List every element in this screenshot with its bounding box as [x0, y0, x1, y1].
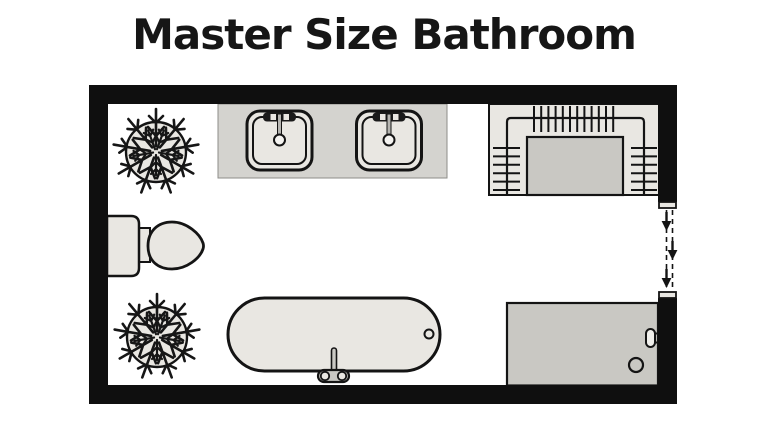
door-opening — [659, 202, 677, 298]
entry-arrow-icon — [668, 241, 678, 260]
sink-left-icon — [247, 111, 312, 170]
shower-icon — [507, 303, 660, 386]
page: Master Size Bathroom — [0, 0, 768, 432]
entry-arrow-icon — [662, 212, 672, 231]
door-jamb-bottom — [659, 292, 676, 298]
floor-plan — [0, 0, 768, 432]
plant-top-left-icon — [112, 109, 199, 195]
bathtub-icon — [228, 298, 440, 382]
closet-island — [527, 137, 623, 195]
toilet-icon — [107, 216, 204, 276]
bathtub-drain — [425, 330, 434, 339]
plant-bottom-left-icon — [113, 294, 200, 380]
entry-arrow-icon — [662, 269, 672, 288]
door-jamb-top — [659, 202, 676, 208]
sink-right-icon — [357, 111, 422, 170]
closet-racks — [489, 104, 659, 195]
